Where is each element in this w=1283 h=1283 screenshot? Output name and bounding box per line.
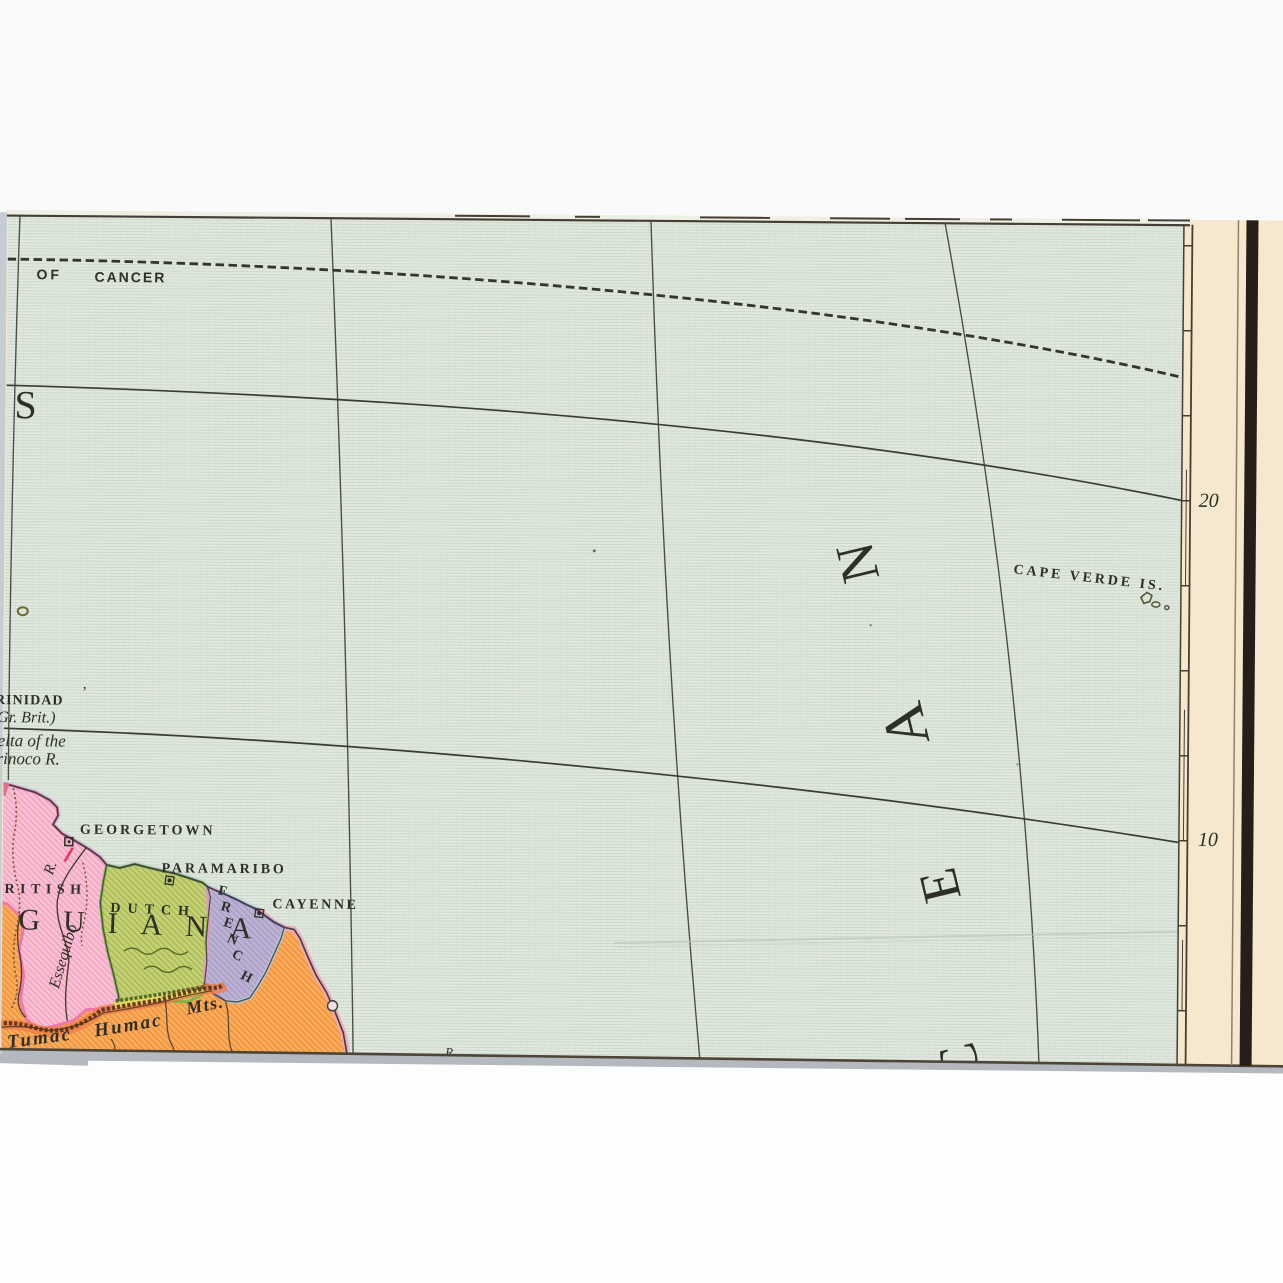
svg-text:rinoco R.: rinoco R. [0, 749, 60, 769]
svg-text:10: 10 [1198, 829, 1218, 851]
svg-text:CANCER: CANCER [94, 269, 166, 286]
svg-text:PARAMARIBO: PARAMARIBO [162, 861, 287, 877]
svg-text:RINIDAD: RINIDAD [0, 693, 64, 709]
svg-text:S: S [14, 382, 37, 427]
svg-text:RITISH: RITISH [4, 882, 86, 898]
svg-text:OF: OF [36, 266, 62, 282]
svg-text:( Gr. Brit.): ( Gr. Brit.) [0, 709, 56, 727]
svg-text:’: ’ [82, 685, 87, 701]
svg-text:elta of the: elta of the [0, 731, 66, 751]
svg-text:20: 20 [1199, 490, 1219, 512]
svg-text:GEORGETOWN: GEORGETOWN [80, 823, 216, 839]
svg-text:CAYENNE: CAYENNE [272, 897, 358, 913]
